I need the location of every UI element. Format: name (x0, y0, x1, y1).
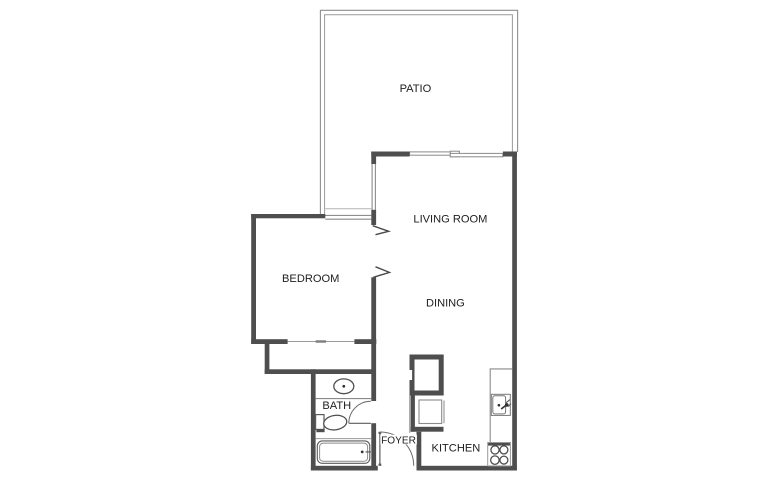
svg-text:DINING: DINING (426, 297, 465, 309)
svg-text:BEDROOM: BEDROOM (282, 273, 339, 285)
svg-text:FOYER: FOYER (381, 436, 416, 447)
svg-text:LIVING ROOM: LIVING ROOM (413, 214, 487, 226)
svg-text:KITCHEN: KITCHEN (432, 443, 481, 455)
svg-text:BATH: BATH (322, 400, 351, 412)
svg-text:PATIO: PATIO (400, 83, 432, 95)
